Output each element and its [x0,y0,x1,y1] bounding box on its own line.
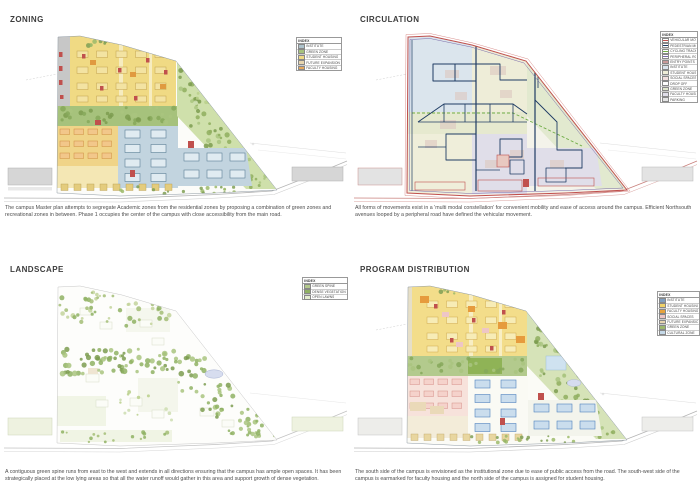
panel-circulation: CIRCULATION [350,0,700,250]
landscape-map [0,250,350,500]
masterplan-sheet: ZONING [0,0,700,500]
legend-swatch [659,309,666,314]
legend-item: CULTURAL ZONE [658,331,699,335]
legend-label: INSTITUTE [667,298,684,302]
zoning-legend: INDEX INSTITUTEGREEN ZONESTUDENT HOUSING… [296,37,342,71]
panel-title: ZONING [10,15,44,24]
panel-zoning: ZONING [0,0,350,250]
legend-swatch [304,284,311,289]
legend-swatch [659,320,666,325]
panel-program-distribution: PROGRAM DISTRIBUTION [350,250,700,500]
legend-label: STUDENT HOUSING [670,71,696,75]
legend-label: FUTURE EXPANSION [306,61,340,65]
panel-landscape: LANDSCAPE [0,250,350,500]
program-zones [406,286,626,444]
circulation-legend: INDEX VEHICULAR MOVEMENTPEDESTRIAN MOVEM… [660,31,698,103]
legend-swatch [298,49,305,54]
legend-label: PERIPHERAL ROAD [670,55,696,59]
legend-swatch [298,44,305,49]
legend-label: FUTURE EXPANSION [667,320,698,324]
legend-label: GREEN ZONE [306,50,328,54]
legend-swatch [662,81,669,86]
circulation-zones [406,36,626,194]
legend-label: STUDENT HOUSING [667,304,698,308]
legend-swatch [659,330,666,335]
legend-swatch [662,76,669,81]
legend-label: GREEN SPINE [312,284,335,288]
legend-swatch [659,303,666,308]
legend-label: FACULTY HOUSING [670,92,696,96]
landscape-legend: INDEX GREEN SPINEDENSE VEGETATIONOPEN LA… [302,277,348,300]
legend-swatch [662,97,669,102]
legend-label: GREEN ZONE [670,87,692,91]
legend-swatch [662,49,669,54]
water-body [205,370,223,378]
legend-label: SOCIAL SPACES [667,315,693,319]
green-zone-band [56,106,178,126]
legend-label: INSTITUTE [670,65,687,69]
panel-caption: The south side of the campus is envision… [355,469,696,483]
legend-item: OPEN LAWNS [303,295,347,299]
zoning-zones [56,36,276,196]
panel-caption: The campus Master plan attempts to segre… [5,205,346,219]
legend-label: CYCLING TRACK [670,49,696,53]
legend-label: DENSE VEGETATION [312,290,346,294]
legend-swatch [298,60,305,65]
legend-label: STUDENT HOUSING [306,55,338,59]
legend-swatch [304,289,311,294]
legend-label: VEHICULAR MOVEMENT [670,38,696,42]
legend-swatch [662,60,669,65]
legend-swatch [659,325,666,330]
legend-label: PARKING [670,98,685,102]
legend-swatch [659,298,666,303]
legend-label: SOCIAL SPACES [670,76,696,80]
legend-item: FACULTY HOUSING [297,66,341,70]
legend-swatch [662,54,669,59]
legend-swatch [304,295,311,300]
panel-title: CIRCULATION [360,15,419,24]
program-distribution-map [350,250,700,500]
legend-swatch [662,65,669,70]
legend-swatch [662,70,669,75]
legend-swatch [662,92,669,97]
legend-label: CULTURAL ZONE [667,331,695,335]
legend-swatch [662,43,669,48]
legend-swatch [662,87,669,92]
legend-item: PARKING [661,97,697,101]
legend-swatch [298,55,305,60]
panel-title: LANDSCAPE [10,265,64,274]
legend-swatch [659,314,666,319]
panel-caption: A contiguous green spine runs from east … [5,469,346,483]
legend-label: INSTITUTE [306,44,323,48]
legend-label: FACULTY HOUSING [306,66,337,70]
legend-label: GREEN ZONE [667,325,689,329]
legend-swatch [298,66,305,71]
program-legend: INDEX INSTITUTESTUDENT HOUSINGFACULTY HO… [657,291,700,336]
panel-caption: All forms of movements exist in a 'multi… [355,205,696,219]
legend-label: DROP OFF [670,82,687,86]
legend-label: OPEN LAWNS [312,295,334,299]
legend-label: PEDESTRIAN MOVEMENT [670,44,696,48]
panel-title: PROGRAM DISTRIBUTION [360,265,470,274]
legend-swatch [662,38,669,43]
legend-label: FACULTY HOUSING [667,309,698,313]
legend-label: ENTRY POINTS [670,60,695,64]
